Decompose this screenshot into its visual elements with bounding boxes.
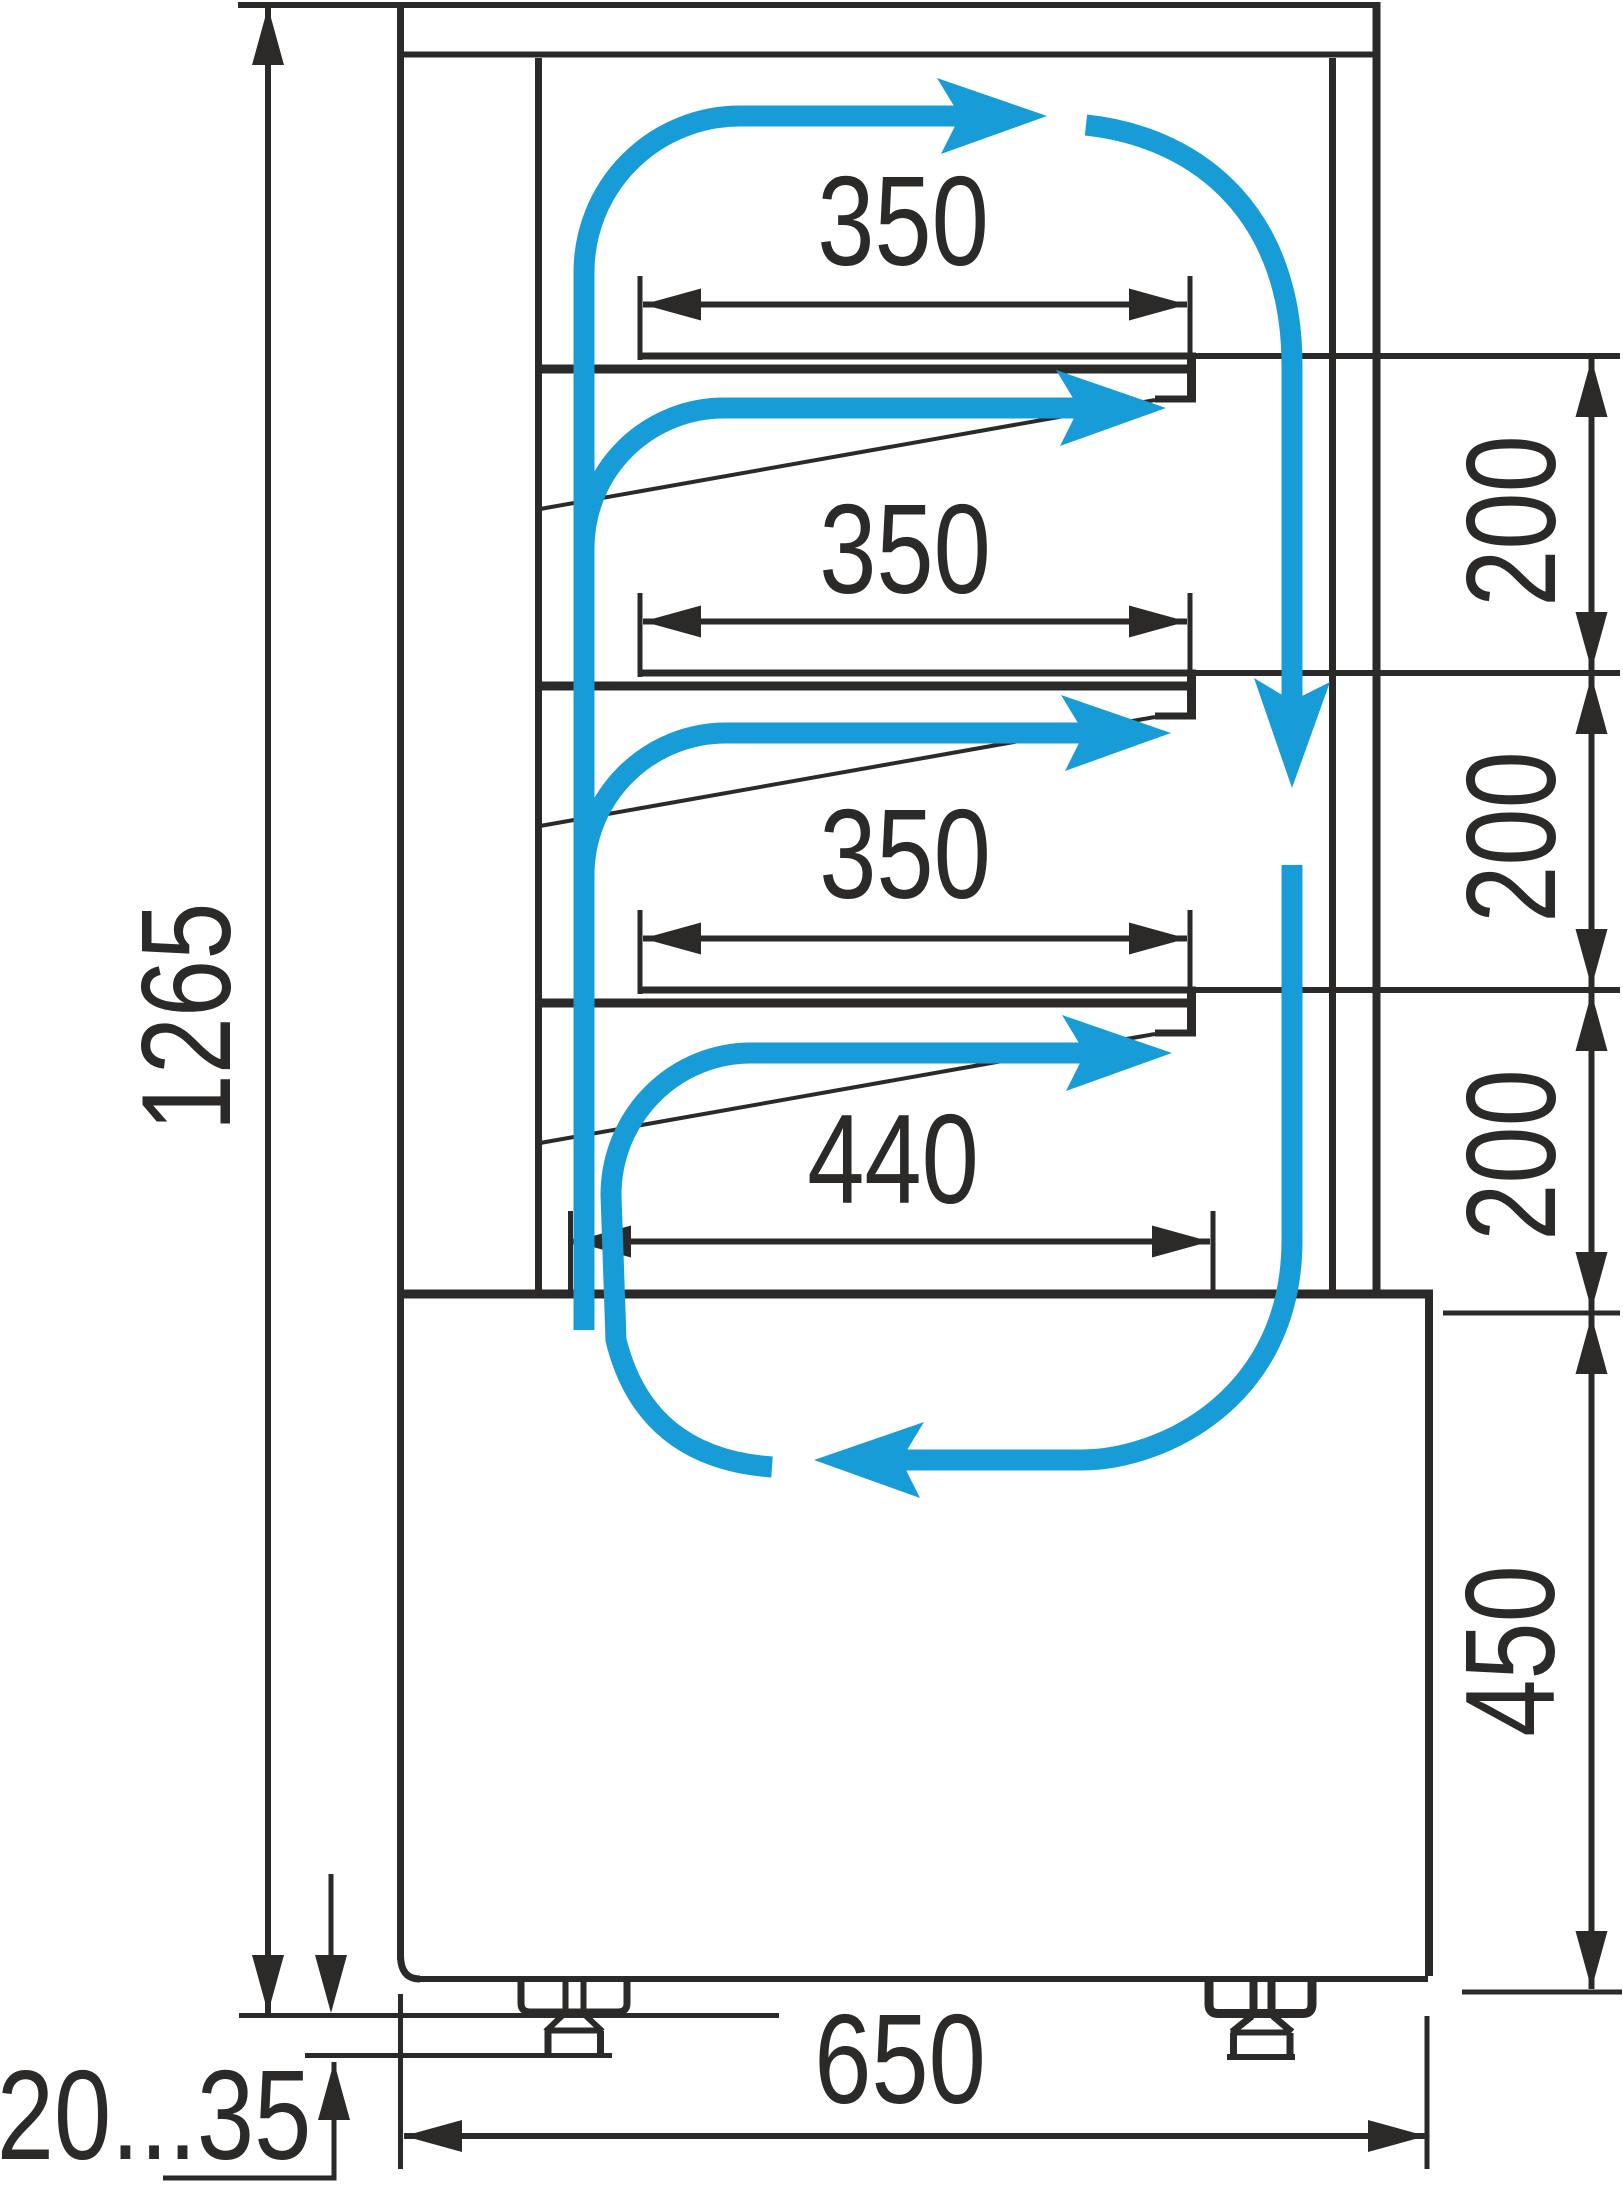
svg-text:200: 200	[1441, 751, 1583, 923]
svg-text:450: 450	[1440, 1565, 1582, 1737]
svg-text:350: 350	[817, 151, 989, 293]
svg-text:650: 650	[814, 1989, 986, 2131]
svg-text:20...35: 20...35	[0, 2045, 311, 2185]
svg-text:200: 200	[1441, 1069, 1583, 1241]
svg-text:1265: 1265	[116, 903, 258, 1132]
svg-text:350: 350	[819, 479, 991, 621]
svg-text:350: 350	[819, 784, 991, 926]
svg-text:440: 440	[807, 1089, 979, 1231]
svg-text:200: 200	[1441, 435, 1583, 607]
